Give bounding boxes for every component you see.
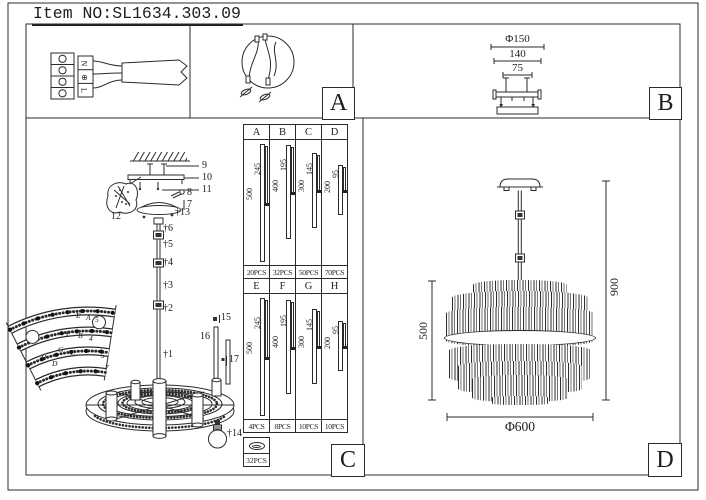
screw-symbol-icon xyxy=(259,92,271,102)
chandelier-canopy xyxy=(497,179,543,191)
fan-num: 5 xyxy=(101,352,105,360)
part-label-14: †14 xyxy=(227,429,242,439)
rod-cell: 200 95 xyxy=(322,140,348,266)
table-header: G xyxy=(296,279,322,294)
instruction-sheet: Item NO:SL1634.303.09 xyxy=(0,0,706,500)
ring-qty-cell: 32PCS xyxy=(243,453,270,467)
rod-outer-dim: 300 xyxy=(297,336,306,348)
part-label-3: †3 xyxy=(163,281,173,291)
wire-detail-circle xyxy=(240,34,294,102)
rod-outer-dim: 500 xyxy=(245,342,254,354)
chandelier-stem xyxy=(516,191,525,281)
qty-cell: 70PCS xyxy=(322,266,348,279)
rod-outer-dim: 400 xyxy=(271,180,280,192)
part-label-11: 11 xyxy=(202,185,212,195)
fan-label-h: H xyxy=(41,354,46,362)
fan-num: 5 xyxy=(95,316,99,324)
rod-outer-dim: 400 xyxy=(271,336,280,348)
table-header: D xyxy=(322,125,348,140)
terminal-n-label: N xyxy=(79,61,88,67)
panel-label-d: D xyxy=(648,443,682,477)
fan-label-d: D xyxy=(52,360,57,368)
panel-letter: B xyxy=(657,90,673,117)
part-label-12: 12 xyxy=(111,212,121,222)
fan-label-e: E xyxy=(76,312,81,320)
part-label-15: 15 xyxy=(221,313,231,323)
table-header: C xyxy=(296,125,322,140)
fan-label-a: A xyxy=(86,314,91,322)
part-label-2: †2 xyxy=(163,304,173,314)
drawing-layer xyxy=(0,0,706,500)
panel-letter: D xyxy=(656,447,673,474)
qty-cell: 10PCS xyxy=(296,420,322,433)
rod-outer-dim: 500 xyxy=(245,188,254,200)
diameter-label: Φ600 xyxy=(490,420,550,434)
fan-num: 4 xyxy=(89,335,93,343)
part-label-5: †5 xyxy=(163,240,173,250)
fan-label-g: G xyxy=(58,346,63,354)
exploded-stem-rods xyxy=(154,218,164,383)
table-header: H xyxy=(322,279,348,294)
screw-symbol-icon xyxy=(240,87,252,97)
panel-label-a: A xyxy=(322,87,355,120)
fan-label-c: C xyxy=(70,349,75,357)
rod-cell: 300 145 xyxy=(296,294,322,420)
total-height-label: 900 xyxy=(608,278,620,296)
exploded-connector-8 xyxy=(171,190,184,198)
mounting-bracket-drawing xyxy=(493,78,541,114)
bracket-width-label: 140 xyxy=(494,49,541,60)
ceiling-hatch xyxy=(130,152,190,161)
ring-icon xyxy=(249,442,265,450)
qty-cell: 4PCS xyxy=(244,420,270,433)
panel-letter: C xyxy=(340,447,356,474)
table-header: B xyxy=(270,125,296,140)
ring-frame-assembly xyxy=(86,378,234,438)
qty-cell: 20PCS xyxy=(244,266,270,279)
dimension-500 xyxy=(428,281,436,400)
part-label-4: †4 xyxy=(163,258,173,268)
fan-label-b: B xyxy=(78,332,83,340)
qty-cell: 10PCS xyxy=(322,420,348,433)
table-header: E xyxy=(244,279,270,294)
part-label-9: 9 xyxy=(202,161,207,171)
cable-drawing xyxy=(93,60,187,88)
part-label-8: 8 xyxy=(187,188,192,198)
rod-cell: 500 245 xyxy=(244,294,270,420)
terminal-l-label: L xyxy=(79,88,88,93)
rod-cell: 400 195 xyxy=(270,140,296,266)
bracket-inner-label: 75 xyxy=(503,63,532,74)
rod-outer-dim: 300 xyxy=(297,180,306,192)
fan-num: 7 xyxy=(105,364,109,372)
part-label-6: †6 xyxy=(163,224,173,234)
qty-cell: 8PCS xyxy=(270,420,296,433)
rod-cell: 200 95 xyxy=(322,294,348,420)
table-header: F xyxy=(270,279,296,294)
ring-part-cell xyxy=(243,437,270,454)
bracket-dia-label: Φ150 xyxy=(491,34,544,45)
fan-label-f: F xyxy=(66,330,71,338)
terminal-earth-label: ⊕ xyxy=(80,74,89,81)
panel-label-c: C xyxy=(331,444,365,477)
panel-letter: A xyxy=(330,90,347,117)
crystal-tier xyxy=(492,396,548,405)
panel-label-b: B xyxy=(649,87,682,120)
part-label-16: 16 xyxy=(200,332,210,342)
table-header: A xyxy=(244,125,270,140)
body-height-label: 500 xyxy=(417,322,429,340)
rod-outer-dim: 200 xyxy=(323,181,332,193)
wire-bundle-detail-12 xyxy=(107,177,141,213)
rod-outer-dim: 200 xyxy=(323,337,332,349)
part-label-1: †1 xyxy=(163,350,173,360)
part-label-10: 10 xyxy=(202,173,212,183)
part-label-17: 17 xyxy=(229,355,239,365)
qty-cell: 32PCS xyxy=(270,266,296,279)
part-label-13: †13 xyxy=(175,208,190,218)
rod-cell: 300 145 xyxy=(296,140,322,266)
qty-cell: 50PCS xyxy=(296,266,322,279)
rod-size-table: A B C D 500 245 400 195 300 145 200 xyxy=(243,124,348,433)
rod-cell: 500 245 xyxy=(244,140,270,266)
ring-fan-detail xyxy=(6,304,127,394)
rod-cell: 400 195 xyxy=(270,294,296,420)
spare-rods-15-16-17 xyxy=(213,315,230,384)
